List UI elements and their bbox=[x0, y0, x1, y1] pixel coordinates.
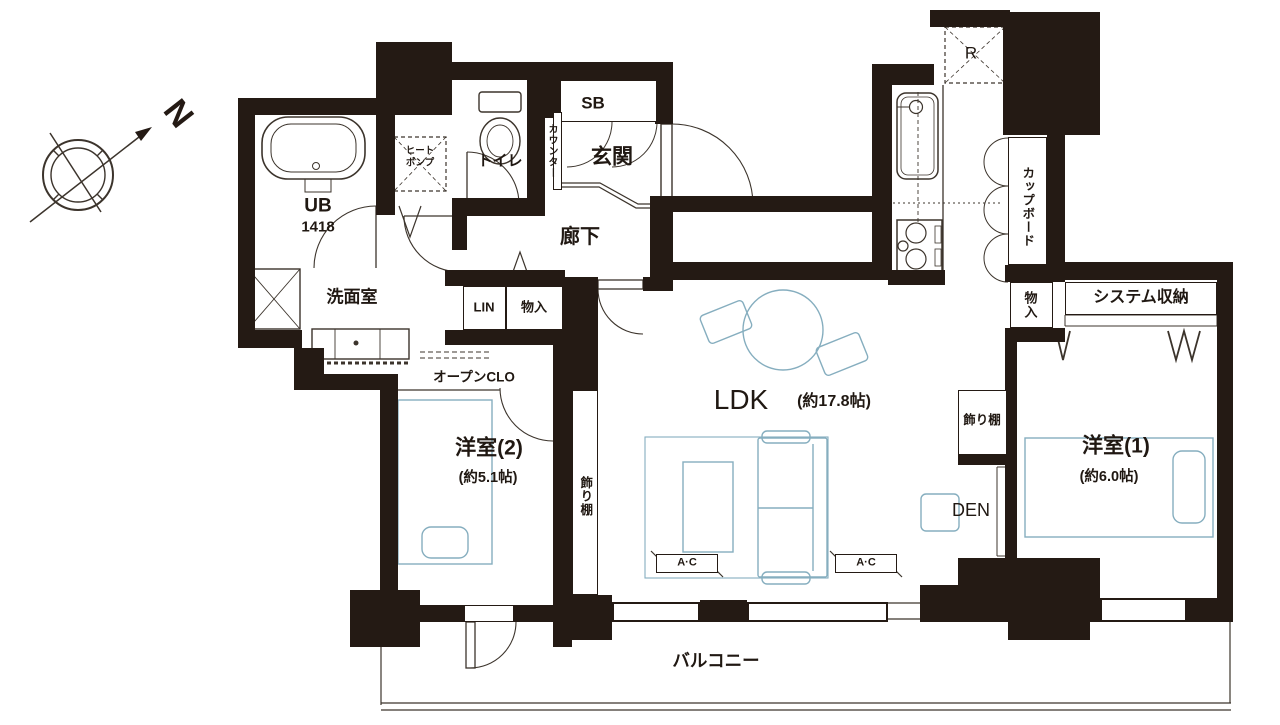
sliding-window bbox=[612, 602, 700, 622]
wall bbox=[958, 558, 1100, 622]
balcony-door-icon bbox=[466, 622, 516, 668]
wall bbox=[376, 98, 395, 215]
wall bbox=[1008, 622, 1090, 640]
label-balcony: バルコニー bbox=[672, 652, 759, 670]
kitchen-icon bbox=[893, 85, 1003, 278]
chair bbox=[699, 299, 753, 344]
wall bbox=[958, 455, 1007, 465]
wall bbox=[527, 80, 545, 205]
label-open-closet: オープンCLO bbox=[433, 370, 515, 384]
wall bbox=[1003, 12, 1100, 135]
den-niche bbox=[997, 467, 1005, 556]
wall bbox=[445, 270, 565, 286]
label-heat-pump-2: ポンプ bbox=[406, 158, 434, 168]
balcony-door-opening bbox=[465, 605, 513, 622]
label-ac-2: A·C bbox=[856, 558, 876, 569]
room-size-bedroom2: (約5.1帖) bbox=[459, 471, 518, 486]
room-label-toilet: トイレ bbox=[477, 154, 522, 169]
room-label-den: DEN bbox=[952, 501, 990, 519]
wall bbox=[452, 62, 657, 80]
room-label-hallway: 廊下 bbox=[560, 227, 600, 247]
coffee-table bbox=[683, 462, 733, 552]
washing-machine-icon bbox=[248, 269, 300, 329]
entrance-step bbox=[558, 183, 656, 208]
balcony-boundary bbox=[381, 622, 1231, 710]
room-size-ub: 1418 bbox=[301, 220, 334, 235]
bed2-pillow bbox=[422, 527, 468, 558]
wall bbox=[1217, 280, 1233, 622]
compass-icon bbox=[30, 127, 152, 222]
sliding-window bbox=[747, 602, 888, 622]
wall bbox=[294, 374, 398, 390]
wall bbox=[700, 600, 747, 622]
label-shelf-right: 飾り棚 bbox=[963, 414, 1001, 427]
wall bbox=[650, 196, 890, 212]
label-system-storage: システム収納 bbox=[1093, 290, 1189, 306]
label-shoe-box: SB bbox=[581, 95, 605, 112]
toilet-icon bbox=[467, 92, 521, 204]
wall bbox=[888, 270, 945, 285]
label-shelf-left: 飾り棚 bbox=[579, 476, 592, 517]
chair bbox=[815, 331, 869, 376]
label-kitchen-storage: 物入 bbox=[1024, 291, 1037, 319]
wall bbox=[445, 330, 565, 345]
bed1-pillow bbox=[1173, 451, 1205, 523]
room-label-entrance: 玄関 bbox=[591, 147, 633, 168]
vanity-icon bbox=[312, 329, 409, 363]
label-counter: カウンター bbox=[546, 124, 556, 179]
wall bbox=[238, 330, 302, 348]
wall bbox=[452, 198, 467, 250]
wall bbox=[398, 605, 465, 622]
wall bbox=[553, 385, 572, 647]
label-ac-1: A·C bbox=[677, 558, 697, 569]
wall bbox=[1005, 328, 1065, 342]
open-closet-rail-icon bbox=[420, 352, 492, 358]
sb-cabinet bbox=[560, 80, 657, 122]
wall bbox=[376, 42, 452, 102]
hallway-door-icon bbox=[598, 280, 643, 334]
room-label-bedroom1: 洋室(1) bbox=[1082, 436, 1150, 457]
room-label-ldk: LDK bbox=[714, 386, 768, 414]
room-size-bedroom1: (約6.0帖) bbox=[1080, 470, 1139, 485]
wall bbox=[660, 262, 890, 280]
wall bbox=[872, 64, 892, 280]
label-hall-storage: 物入 bbox=[521, 301, 547, 314]
label-linen: LIN bbox=[474, 301, 495, 314]
wall bbox=[1058, 262, 1233, 280]
wall bbox=[572, 595, 612, 640]
room-size-ldk: (約17.8帖) bbox=[797, 394, 871, 410]
wall bbox=[930, 10, 1010, 27]
room-label-ub: UB bbox=[304, 197, 331, 216]
sliding-window bbox=[1100, 598, 1187, 622]
wall bbox=[872, 64, 934, 85]
bathtub-icon bbox=[262, 117, 376, 268]
wall bbox=[238, 98, 255, 348]
bedroom2-door-icon bbox=[398, 388, 553, 441]
fold-door-icon bbox=[399, 206, 421, 237]
wall bbox=[920, 585, 960, 622]
cupboard-doors-icon bbox=[984, 138, 1008, 282]
wall bbox=[1005, 265, 1065, 282]
wall bbox=[655, 62, 673, 124]
wall bbox=[1187, 598, 1233, 622]
floor-plan: UB 1418 ヒート ポンプ トイレ カウンター SB 玄関 廊下 R カップ… bbox=[0, 0, 1280, 725]
dining-table bbox=[743, 290, 823, 370]
label-heat-pump-1: ヒート bbox=[406, 146, 435, 156]
room-label-washroom: 洗面室 bbox=[327, 289, 378, 306]
wall bbox=[1047, 135, 1065, 267]
entrance-door-icon bbox=[661, 124, 753, 205]
label-refrigerator: R bbox=[965, 45, 977, 62]
label-cupboard: カップボード bbox=[1021, 167, 1034, 248]
room-label-bedroom2: 洋室(2) bbox=[455, 438, 523, 459]
